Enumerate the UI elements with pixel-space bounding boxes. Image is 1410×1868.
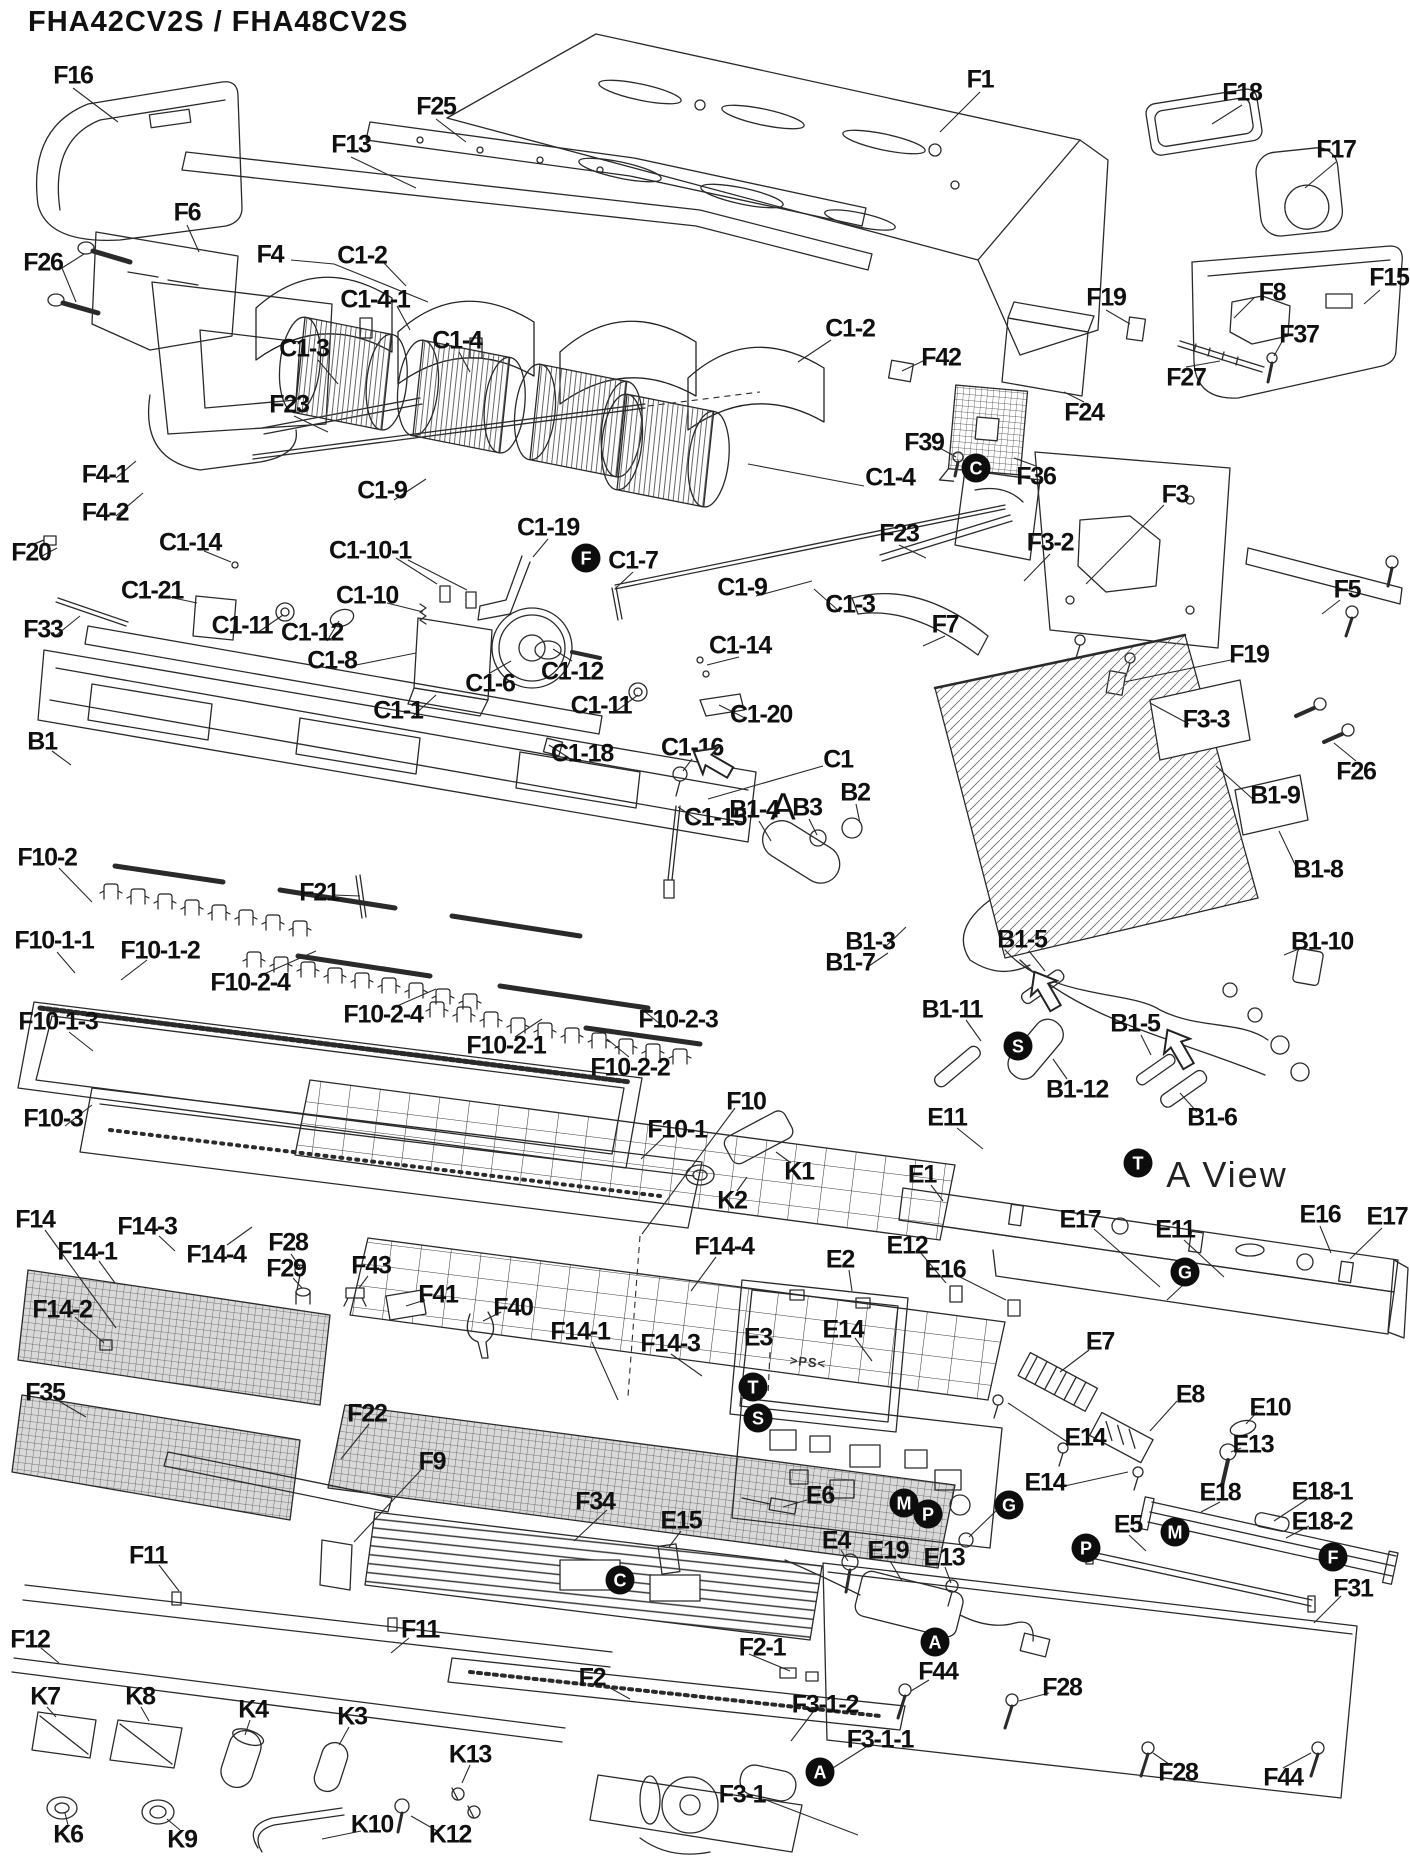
duct-f3-2 [955, 470, 1040, 560]
pump-f3-1 [590, 1763, 802, 1855]
rod-f27 [1178, 341, 1264, 372]
bracket-f5 [1246, 548, 1402, 636]
bracket-c1-20 [700, 694, 744, 716]
accumulator-b1-4 [755, 814, 846, 891]
motor-c1-6 [492, 608, 600, 688]
end-panel-f16 [37, 82, 242, 241]
box-f24 [1002, 302, 1094, 396]
gasket-f17 [1254, 146, 1344, 238]
blower-wheels [274, 315, 734, 509]
bracket-c1-21 [193, 596, 236, 640]
end-panel-f15 [1192, 246, 1402, 398]
terminal-e8 [1090, 1412, 1153, 1462]
grille-f2 [448, 1658, 905, 1730]
strip-f25 [366, 122, 866, 226]
rails-f11-f12 [12, 1585, 612, 1742]
exploded-parts-diagram-page: FHA42CV2S / FHA48CV2S A View F16F1F18F17… [0, 0, 1410, 1868]
bracket-c1-19 [478, 556, 530, 620]
filter-f14-1a [18, 1270, 330, 1405]
drain-pan-b1 [38, 650, 756, 842]
filter-f14-4a [295, 1080, 955, 1240]
terminal-e7 [1018, 1353, 1097, 1412]
side-plate-f3 [1035, 452, 1230, 648]
blade-f7 [852, 594, 988, 655]
top-panel-f1 [447, 34, 1108, 355]
lid-f18 [1145, 88, 1264, 157]
filter-f35 [12, 1395, 300, 1520]
clip-f20 [34, 536, 56, 545]
bracket-e1 [899, 1188, 1408, 1338]
mount-box-c1-8 [408, 618, 492, 716]
clip-f19 [1127, 317, 1146, 341]
heat-exchanger-b1 [935, 635, 1309, 1081]
dashed-leaders [628, 392, 770, 1396]
k-parts [32, 1712, 480, 1852]
rod-e5 [1086, 1548, 1315, 1612]
strip-f13 [182, 152, 872, 270]
screws-f26 [48, 242, 130, 313]
diagram-title: FHA42CV2S / FHA48CV2S [28, 6, 408, 39]
view-label: A View [1166, 1154, 1287, 1196]
bracket-f8 [1230, 296, 1290, 344]
clip-rows-f10-2 [100, 866, 700, 1064]
diagram-line-art [0, 0, 1410, 1868]
grille-f36 [939, 384, 1027, 487]
part-f42 [889, 360, 914, 382]
part-f9 [320, 1540, 352, 1590]
